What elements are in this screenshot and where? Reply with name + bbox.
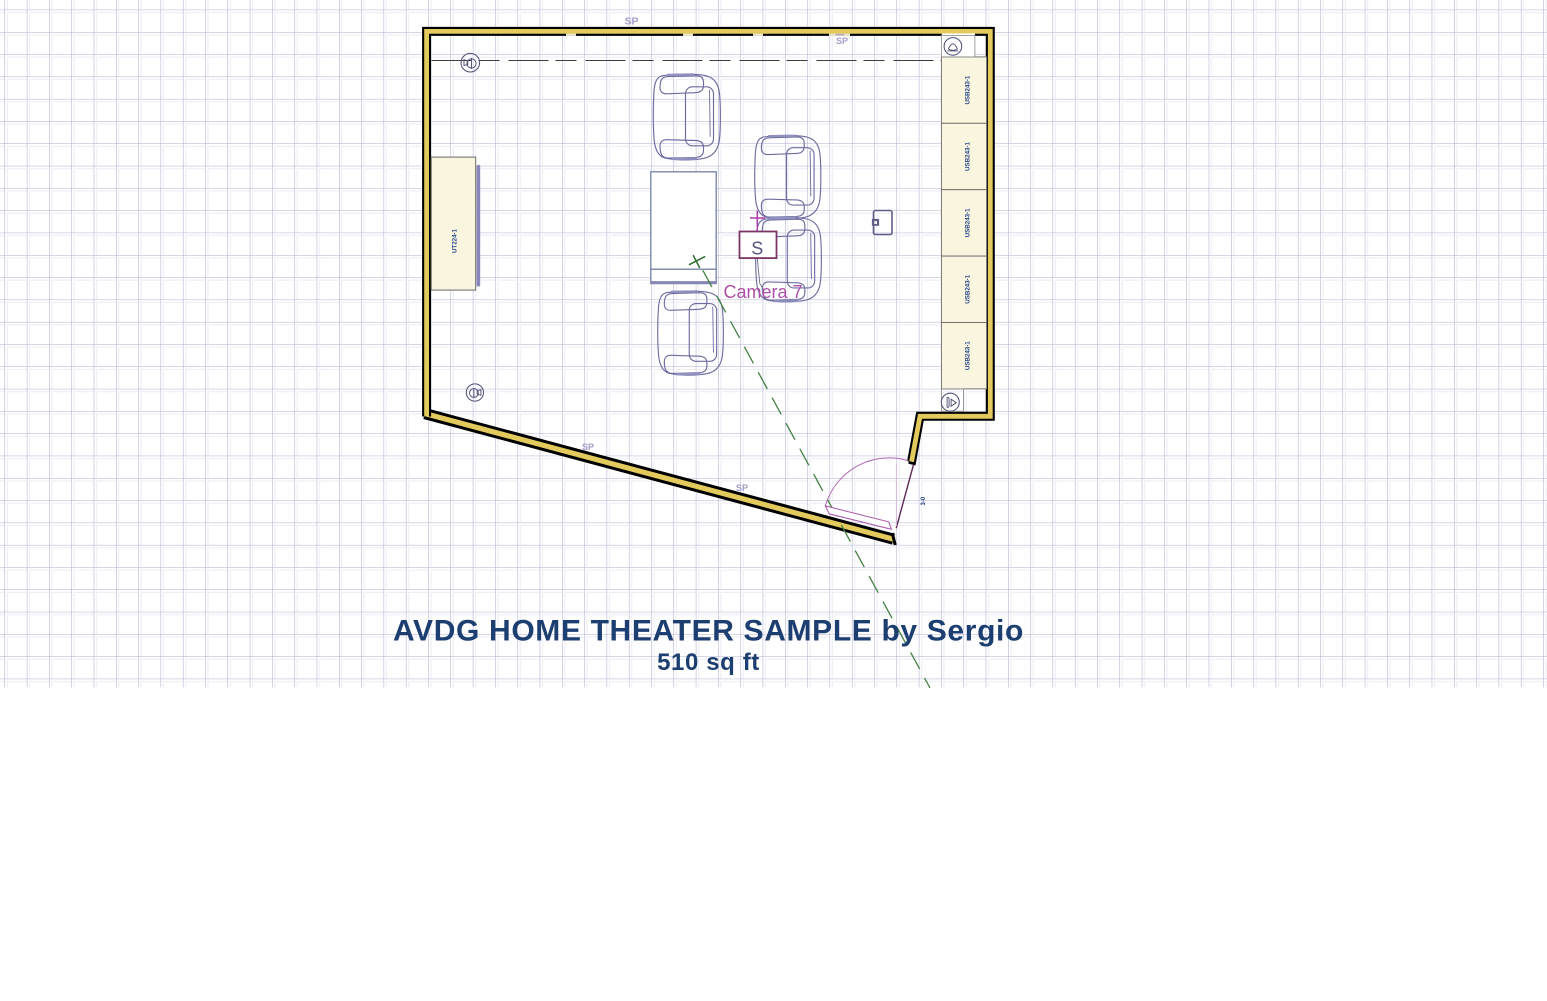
svg-text:UT224-1: UT224-1: [452, 228, 459, 253]
svg-text:510 sq ft: 510 sq ft: [657, 649, 760, 676]
svg-text:S: S: [751, 239, 763, 259]
svg-text:SP: SP: [736, 483, 748, 493]
svg-text:USB243-1: USB243-1: [965, 208, 972, 237]
svg-text:SP: SP: [582, 442, 594, 452]
svg-text:USB243-1: USB243-1: [965, 75, 972, 104]
svg-text:USB243-1: USB243-1: [965, 341, 972, 370]
svg-text:USB243-1: USB243-1: [965, 141, 972, 170]
svg-text:SP: SP: [836, 36, 848, 46]
svg-text:USB243-1: USB243-1: [965, 274, 972, 303]
svg-text:SP: SP: [625, 15, 639, 27]
svg-text:AVDG HOME THEATER SAMPLE by Se: AVDG HOME THEATER SAMPLE by Sergio: [393, 615, 1024, 648]
svg-text:3-0: 3-0: [921, 496, 927, 505]
svg-text:Camera 7: Camera 7: [724, 282, 803, 302]
